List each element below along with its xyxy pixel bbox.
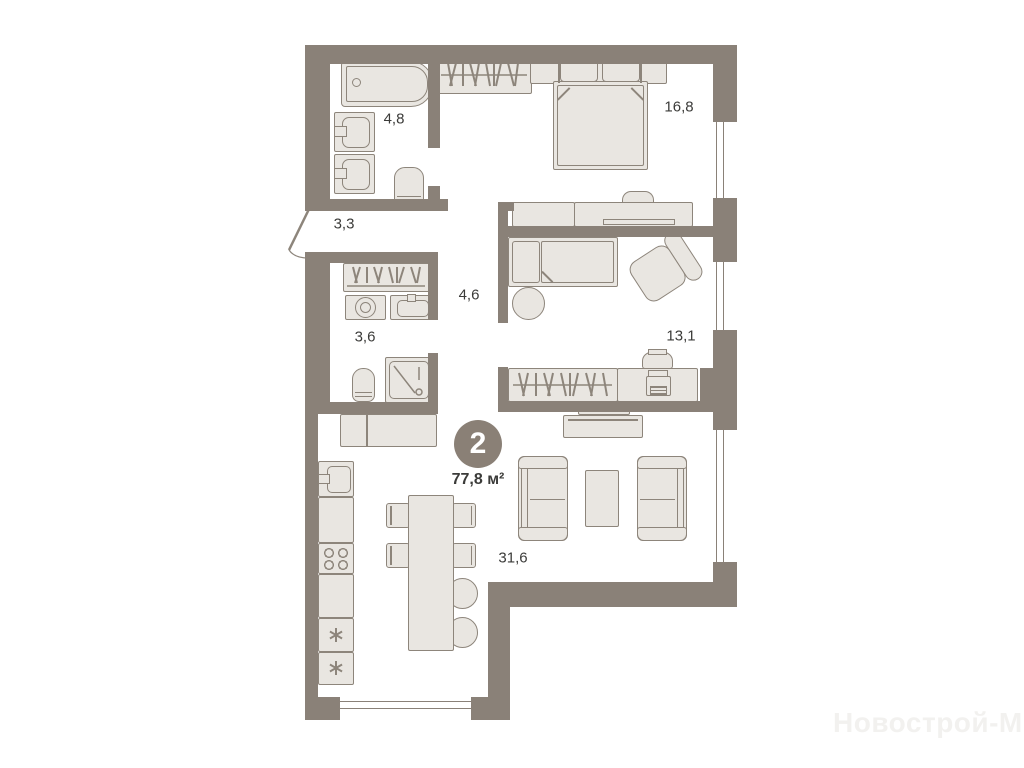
divider xyxy=(366,415,368,446)
room-label-bedroom: 16,8 xyxy=(664,99,693,116)
dining-chair xyxy=(452,503,476,528)
pouf xyxy=(512,287,545,320)
bathroom-sink xyxy=(334,154,375,194)
mattress xyxy=(557,85,644,166)
dining-chair xyxy=(386,543,410,568)
wall-segment xyxy=(428,64,440,148)
dining-chair xyxy=(386,503,410,528)
room-label-living-kitchen: 31,6 xyxy=(498,550,527,567)
room-label-hallway: 3,3 xyxy=(334,216,355,233)
kitchen-cabinet xyxy=(340,414,437,447)
coffee-table xyxy=(585,470,619,527)
sofa-seat-line xyxy=(530,499,565,501)
rooms-count-badge: 2 xyxy=(454,420,502,468)
wall-segment xyxy=(305,402,438,414)
wall-segment xyxy=(498,202,508,323)
total-area-label: 77,8 м² xyxy=(452,471,505,489)
hanger-rack-icon xyxy=(344,264,428,290)
wall-segment xyxy=(713,45,737,122)
window xyxy=(716,122,724,198)
tv-stand xyxy=(563,415,643,438)
blanket xyxy=(541,241,614,283)
dining-chair xyxy=(452,543,476,568)
wall-segment xyxy=(498,401,713,412)
kitchen-counter xyxy=(318,574,354,618)
room-label-laundry: 3,6 xyxy=(355,329,376,346)
wardrobe xyxy=(508,368,618,402)
window xyxy=(340,701,471,709)
stove xyxy=(318,543,354,574)
wall-segment xyxy=(498,226,715,237)
shower-drain-icon xyxy=(386,358,431,401)
wall-segment xyxy=(305,697,340,720)
toilet xyxy=(352,368,375,402)
window xyxy=(716,262,724,330)
wall-segment xyxy=(305,414,318,720)
wall-segment xyxy=(305,252,438,263)
watermark: Новострой-М xyxy=(833,707,1023,739)
fridge-asterisk-icon xyxy=(335,628,337,642)
apartment-floor-plan: 4,8 3,3 3,6 4,6 16,8 13,1 31,6 2 77,8 м²… xyxy=(0,0,1024,768)
wall-segment xyxy=(713,198,737,262)
sofa-backrest xyxy=(521,468,528,528)
shower xyxy=(385,357,433,403)
pillow xyxy=(512,241,540,283)
hanger-rack-icon xyxy=(509,369,616,400)
wall-segment xyxy=(428,186,440,200)
room-label-bathroom: 4,8 xyxy=(384,111,405,128)
wall-segment xyxy=(305,45,330,205)
wall-segment xyxy=(713,562,737,607)
wall-segment xyxy=(498,202,514,211)
sofa xyxy=(518,456,568,541)
bathroom-sink xyxy=(334,112,375,152)
wall-segment xyxy=(305,45,737,64)
wall-segment xyxy=(305,199,448,211)
sofa xyxy=(637,456,687,541)
wall-segment xyxy=(510,582,737,607)
hanger-rack xyxy=(343,263,430,292)
rooms-count: 2 xyxy=(470,427,487,461)
wall-segment xyxy=(488,582,510,720)
freezer-asterisk-icon xyxy=(335,661,337,675)
wall-segment xyxy=(305,258,330,414)
bathtub xyxy=(341,61,433,107)
desk-chair xyxy=(642,352,673,369)
wall-segment xyxy=(428,353,438,404)
wall-segment xyxy=(428,253,438,320)
window xyxy=(716,430,724,562)
kitchen-counter xyxy=(318,497,354,543)
sofa-seat-line xyxy=(640,499,675,501)
sink xyxy=(390,295,433,320)
sofa-backrest xyxy=(677,468,684,528)
computer xyxy=(646,376,671,396)
kitchen-sink xyxy=(318,461,354,497)
bedroom-desk xyxy=(512,202,575,227)
room-label-kids-room: 13,1 xyxy=(666,328,695,345)
dining-table xyxy=(408,495,454,651)
washing-machine xyxy=(345,295,386,320)
room-label-corridor: 4,6 xyxy=(459,287,480,304)
